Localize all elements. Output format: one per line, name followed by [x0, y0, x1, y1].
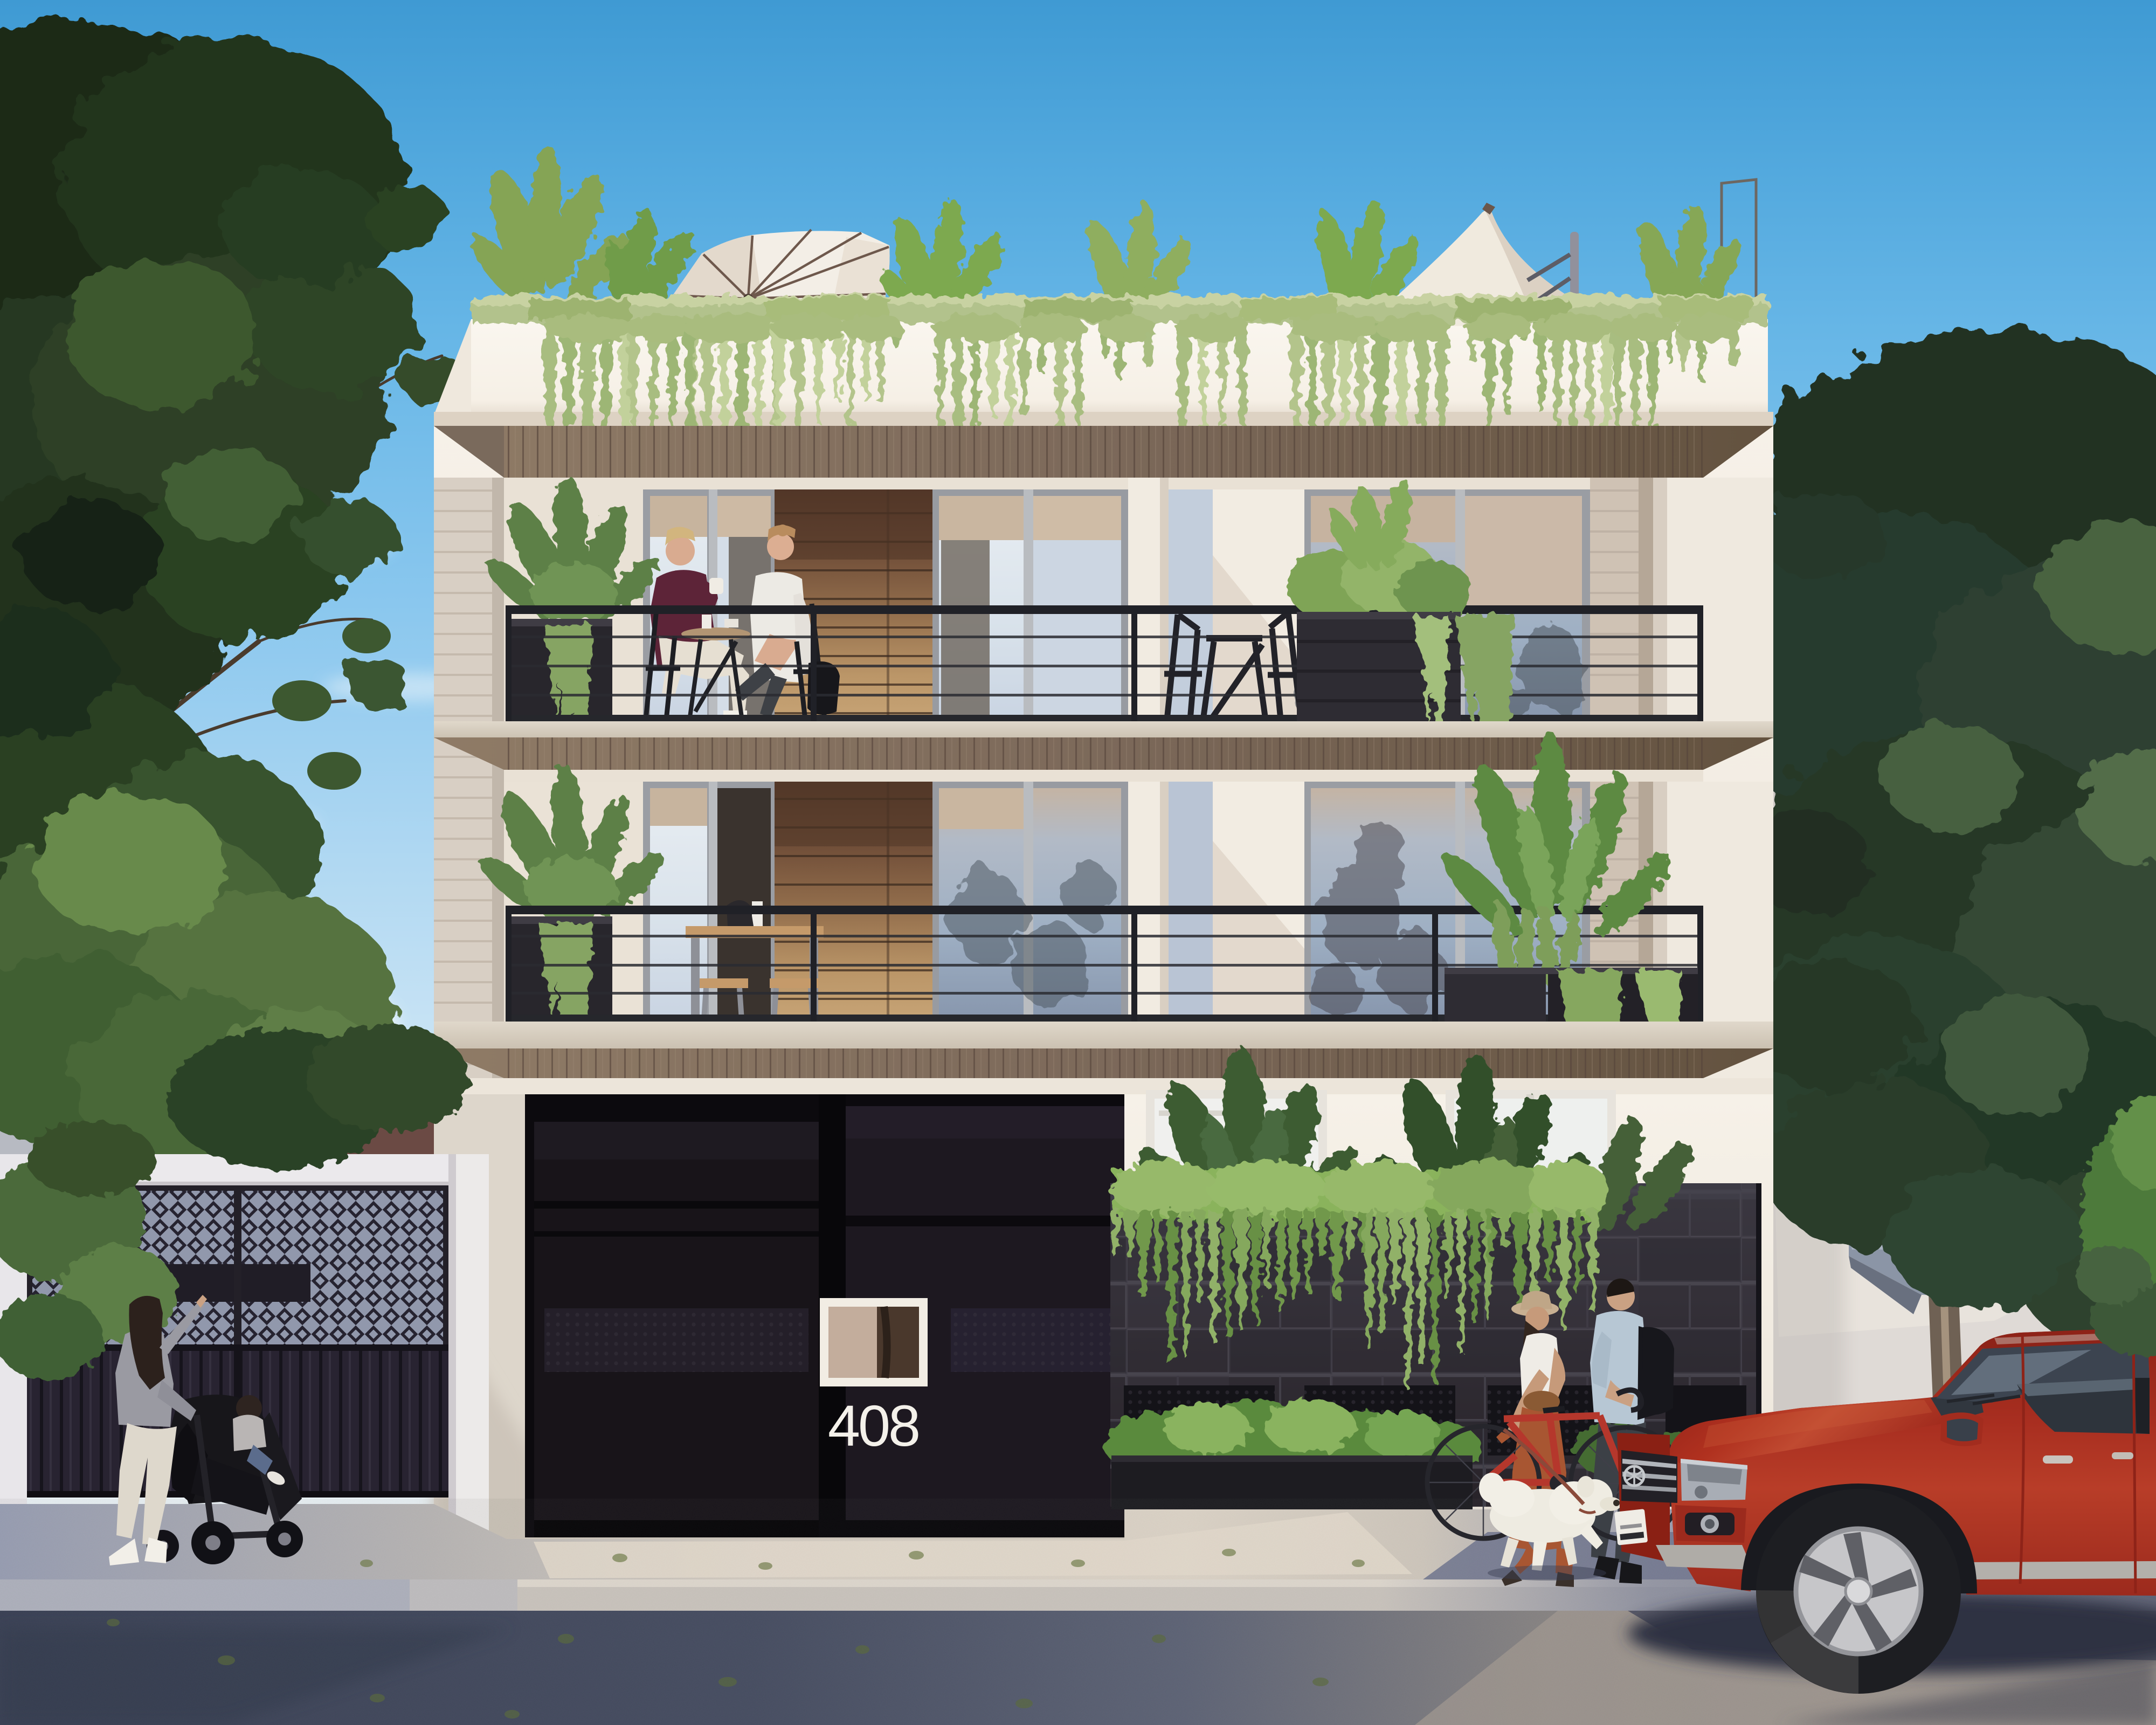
svg-text:408: 408 [828, 1393, 918, 1458]
